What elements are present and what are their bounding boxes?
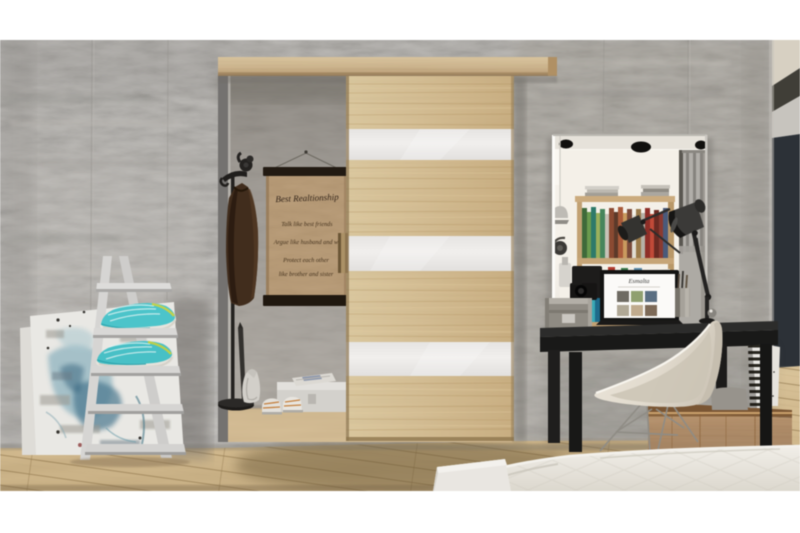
svg-text:Protect each other: Protect each other [282,257,329,264]
svg-text:Talk like best friends: Talk like best friends [281,221,333,228]
svg-text:like brother and sister: like brother and sister [279,271,334,278]
svg-text:Esmalta: Esmalta [628,278,650,285]
svg-text:Argue like husband and wife: Argue like husband and wife [273,239,345,246]
